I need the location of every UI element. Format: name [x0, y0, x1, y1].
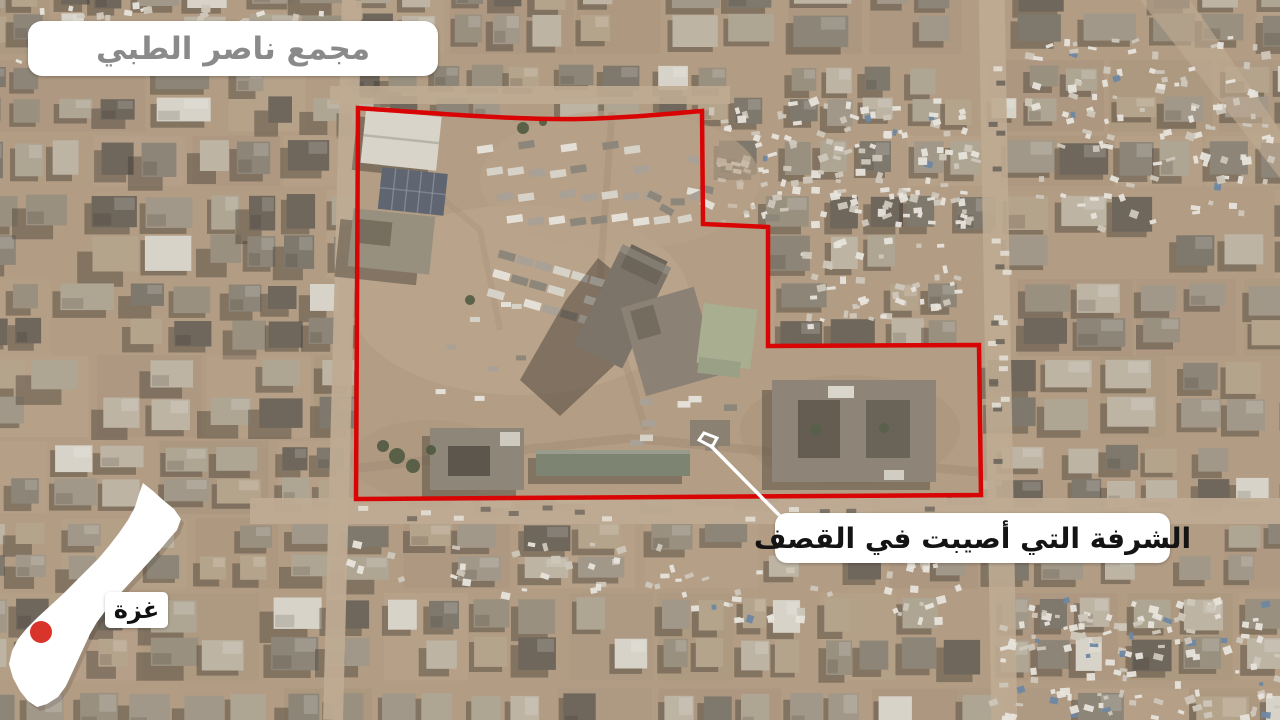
tent — [795, 615, 805, 624]
building — [0, 319, 8, 346]
building — [310, 284, 338, 311]
tent — [806, 313, 812, 321]
tree — [465, 295, 475, 305]
tent — [933, 563, 939, 568]
tent — [872, 155, 882, 162]
tree — [517, 122, 529, 134]
tent — [920, 299, 925, 305]
tent — [823, 103, 828, 109]
tent — [1055, 615, 1060, 619]
building — [704, 696, 732, 720]
building — [577, 597, 606, 630]
building — [472, 65, 503, 88]
building — [1225, 234, 1264, 264]
building — [426, 641, 456, 669]
tent — [1120, 651, 1126, 658]
tent — [968, 216, 974, 221]
tent — [1253, 618, 1259, 622]
tent — [780, 208, 789, 212]
tent — [1229, 203, 1237, 209]
tent — [1191, 106, 1197, 112]
tent — [132, 2, 139, 9]
tent — [852, 304, 858, 310]
tent — [1126, 671, 1136, 678]
building — [13, 99, 39, 122]
building — [268, 96, 292, 122]
tent — [880, 314, 886, 318]
building — [1249, 286, 1280, 315]
tent — [802, 252, 812, 260]
building — [535, 0, 566, 10]
tent — [811, 221, 820, 228]
building — [1038, 640, 1070, 669]
building — [232, 321, 266, 350]
tent — [1186, 649, 1196, 658]
building-shadow — [1274, 205, 1280, 236]
tent — [958, 152, 968, 160]
tent — [810, 295, 817, 299]
tent — [859, 148, 866, 153]
building — [583, 0, 612, 4]
tent — [613, 557, 620, 564]
tent — [1120, 668, 1128, 672]
tent — [660, 573, 669, 578]
tent — [1097, 693, 1101, 696]
tent — [729, 603, 733, 606]
building — [1044, 399, 1088, 430]
tent — [1086, 654, 1091, 659]
tent — [928, 221, 936, 225]
tent — [1064, 39, 1070, 46]
building — [268, 286, 297, 309]
tent — [955, 220, 961, 224]
tent — [852, 195, 857, 199]
tree — [389, 448, 405, 464]
building — [269, 322, 303, 348]
building — [728, 14, 774, 42]
green-roof-annex — [695, 303, 757, 379]
tent — [934, 274, 939, 280]
tent — [792, 186, 801, 195]
tent — [1135, 652, 1143, 659]
tent — [462, 578, 471, 586]
tent — [1261, 51, 1271, 60]
tent — [856, 169, 866, 176]
tree — [377, 440, 389, 452]
tent — [1240, 154, 1246, 160]
building — [879, 696, 912, 720]
tent — [522, 588, 528, 591]
tent — [925, 177, 931, 184]
building — [31, 360, 77, 390]
tent — [1030, 668, 1037, 676]
tent — [786, 567, 795, 573]
building — [860, 641, 889, 670]
tent — [870, 111, 876, 118]
tent — [732, 596, 742, 602]
tent — [1203, 700, 1212, 707]
callout-label: الشرفة التي أصيبت في القصف — [775, 513, 1170, 563]
building — [230, 694, 266, 720]
building — [184, 696, 224, 720]
building — [1084, 14, 1136, 41]
building — [137, 0, 179, 6]
building — [1179, 556, 1211, 580]
building — [919, 16, 950, 41]
tent — [1050, 689, 1055, 694]
building — [1019, 0, 1064, 12]
building — [775, 640, 799, 673]
building — [1268, 523, 1280, 544]
building — [910, 68, 936, 94]
building — [794, 0, 852, 4]
tent — [849, 313, 857, 319]
building — [1024, 318, 1067, 344]
tent — [1175, 681, 1181, 689]
building — [174, 287, 211, 314]
tent — [861, 159, 871, 165]
tent — [1122, 675, 1127, 682]
building — [1252, 320, 1280, 345]
tent — [923, 565, 930, 572]
tent — [1251, 114, 1256, 120]
building — [53, 140, 79, 174]
tent — [1217, 42, 1224, 50]
tent — [675, 578, 682, 581]
map-label-text: غزة — [114, 596, 160, 624]
tent — [1221, 638, 1227, 643]
building — [824, 598, 849, 632]
tent — [1104, 193, 1112, 199]
tent — [1092, 94, 1097, 100]
tent — [918, 157, 927, 165]
tent — [934, 617, 942, 625]
building — [831, 319, 875, 346]
tent — [1117, 114, 1123, 121]
building — [518, 599, 555, 634]
tent — [1099, 703, 1104, 708]
tent — [1152, 51, 1158, 59]
tent — [1261, 711, 1271, 719]
building — [300, 0, 344, 3]
tent — [1035, 639, 1039, 643]
building — [0, 17, 7, 43]
building — [877, 0, 908, 4]
tent — [1140, 108, 1145, 112]
building — [0, 98, 1, 121]
tent — [1103, 66, 1111, 74]
tent — [964, 144, 973, 152]
tent — [1242, 621, 1249, 628]
tent — [879, 254, 884, 258]
tent — [1250, 663, 1257, 670]
building — [402, 0, 430, 7]
tent — [1032, 613, 1038, 619]
news-graphic: مجمع ناصر الطبي الشرفة التي أصيبت في الق… — [0, 0, 1280, 720]
tent — [954, 163, 960, 169]
tent — [1077, 203, 1085, 206]
building — [471, 696, 500, 720]
building — [1025, 284, 1070, 311]
tent — [797, 608, 805, 616]
tent — [937, 147, 944, 153]
tent — [961, 221, 966, 229]
tent — [768, 616, 774, 623]
building — [672, 0, 720, 8]
building — [532, 15, 561, 47]
tent — [889, 193, 895, 199]
tent — [40, 8, 45, 15]
building — [902, 637, 936, 669]
tent — [1174, 83, 1179, 87]
building — [699, 600, 724, 630]
building — [0, 639, 6, 667]
tent — [886, 571, 893, 579]
tent — [884, 131, 892, 139]
tent — [846, 101, 852, 109]
map-label: غزة — [105, 592, 168, 628]
tent — [711, 604, 716, 609]
tent — [892, 106, 901, 111]
building — [0, 0, 4, 8]
tent — [913, 207, 922, 213]
building — [696, 638, 724, 667]
tent — [77, 15, 86, 18]
building — [287, 194, 315, 229]
tent — [1112, 39, 1120, 43]
tent — [1213, 104, 1223, 110]
building — [200, 140, 229, 171]
building — [1018, 14, 1061, 41]
tent — [1070, 631, 1081, 640]
title-text: مجمع ناصر الطبي — [96, 31, 370, 67]
tent — [1105, 659, 1115, 665]
tent — [1241, 634, 1250, 639]
building — [216, 447, 257, 471]
tent — [883, 115, 892, 121]
building — [16, 523, 45, 544]
tent — [590, 543, 595, 547]
tent — [1093, 145, 1100, 152]
tent — [460, 563, 466, 570]
building — [494, 0, 521, 6]
tent — [1155, 70, 1165, 74]
tent — [1039, 176, 1044, 182]
building — [1261, 0, 1280, 7]
building — [918, 0, 949, 8]
building — [1202, 0, 1238, 8]
building — [1068, 449, 1098, 474]
callout-text: الشرفة التي أصيبت في القصف — [754, 522, 1191, 555]
building — [388, 600, 417, 630]
building — [705, 523, 747, 543]
building — [361, 0, 391, 3]
satellite-image — [0, 0, 1280, 720]
tent — [709, 107, 715, 115]
building — [129, 694, 170, 720]
building — [457, 524, 495, 548]
tent — [1148, 621, 1155, 628]
tent — [840, 276, 846, 284]
building — [102, 479, 139, 506]
tent — [1274, 705, 1280, 708]
tent — [1267, 693, 1273, 698]
tree — [426, 445, 436, 455]
tent — [143, 6, 153, 14]
tent — [856, 277, 866, 284]
tent — [944, 131, 951, 137]
tent — [1235, 670, 1239, 673]
building — [12, 0, 37, 7]
tent — [807, 324, 814, 330]
building — [741, 694, 769, 720]
tent — [884, 237, 893, 244]
building — [1145, 449, 1177, 473]
tree — [406, 459, 420, 473]
street-north — [330, 86, 730, 104]
building — [130, 319, 162, 344]
tent — [1238, 210, 1244, 216]
tent — [1119, 623, 1127, 631]
tent — [1036, 195, 1044, 199]
location-dot — [30, 621, 52, 643]
tent — [1078, 623, 1085, 630]
building — [1229, 525, 1261, 547]
tent — [1227, 36, 1233, 40]
tent — [96, 12, 104, 20]
tent — [783, 166, 791, 172]
tent — [1253, 44, 1258, 50]
building-shadow — [1275, 242, 1280, 273]
building — [1006, 235, 1048, 265]
title-label: مجمع ناصر الطبي — [28, 21, 438, 76]
building — [13, 284, 38, 309]
building — [662, 600, 690, 629]
tent — [737, 115, 746, 123]
tent — [939, 154, 947, 161]
building — [1226, 362, 1261, 394]
tent — [734, 617, 741, 622]
tent — [962, 209, 967, 213]
tent — [791, 180, 799, 187]
building — [421, 693, 452, 720]
tent — [916, 244, 921, 248]
tent — [1031, 635, 1036, 639]
tent — [1030, 677, 1038, 684]
building — [1198, 448, 1228, 472]
tent — [1266, 136, 1274, 143]
building — [61, 0, 90, 5]
tent — [915, 190, 920, 195]
building — [1141, 285, 1177, 311]
tent — [941, 183, 949, 187]
tent — [691, 605, 699, 611]
tent — [860, 106, 869, 114]
building — [145, 236, 191, 271]
building — [262, 360, 300, 386]
tent — [1129, 632, 1134, 639]
tent — [934, 199, 942, 206]
tent — [1175, 639, 1181, 645]
tent — [910, 585, 919, 593]
tent — [319, 11, 324, 17]
building — [0, 695, 14, 720]
tent — [1158, 645, 1165, 649]
tent — [1129, 700, 1137, 706]
building — [673, 15, 718, 47]
tent — [1087, 673, 1096, 681]
tent — [1019, 621, 1025, 628]
building — [93, 236, 139, 271]
tent — [1007, 641, 1017, 650]
tent — [933, 98, 941, 104]
tent — [1262, 124, 1269, 128]
tent — [955, 289, 963, 293]
tent — [811, 187, 820, 194]
building-shadow — [1274, 103, 1280, 124]
tent — [551, 556, 561, 564]
building — [474, 637, 507, 667]
tent — [1068, 84, 1077, 93]
tent — [1243, 62, 1250, 70]
tent — [999, 683, 1008, 688]
building — [945, 99, 971, 125]
building — [944, 640, 980, 675]
tent — [937, 244, 944, 248]
tent — [903, 214, 910, 218]
tent — [1255, 623, 1263, 631]
tent — [1187, 599, 1196, 607]
tent — [919, 602, 924, 606]
tent — [895, 221, 902, 227]
building — [382, 693, 416, 720]
tent — [1090, 197, 1099, 201]
tent — [763, 156, 767, 161]
building — [259, 398, 302, 428]
tent — [1070, 605, 1077, 613]
tent — [756, 570, 763, 574]
tent — [1060, 688, 1070, 696]
